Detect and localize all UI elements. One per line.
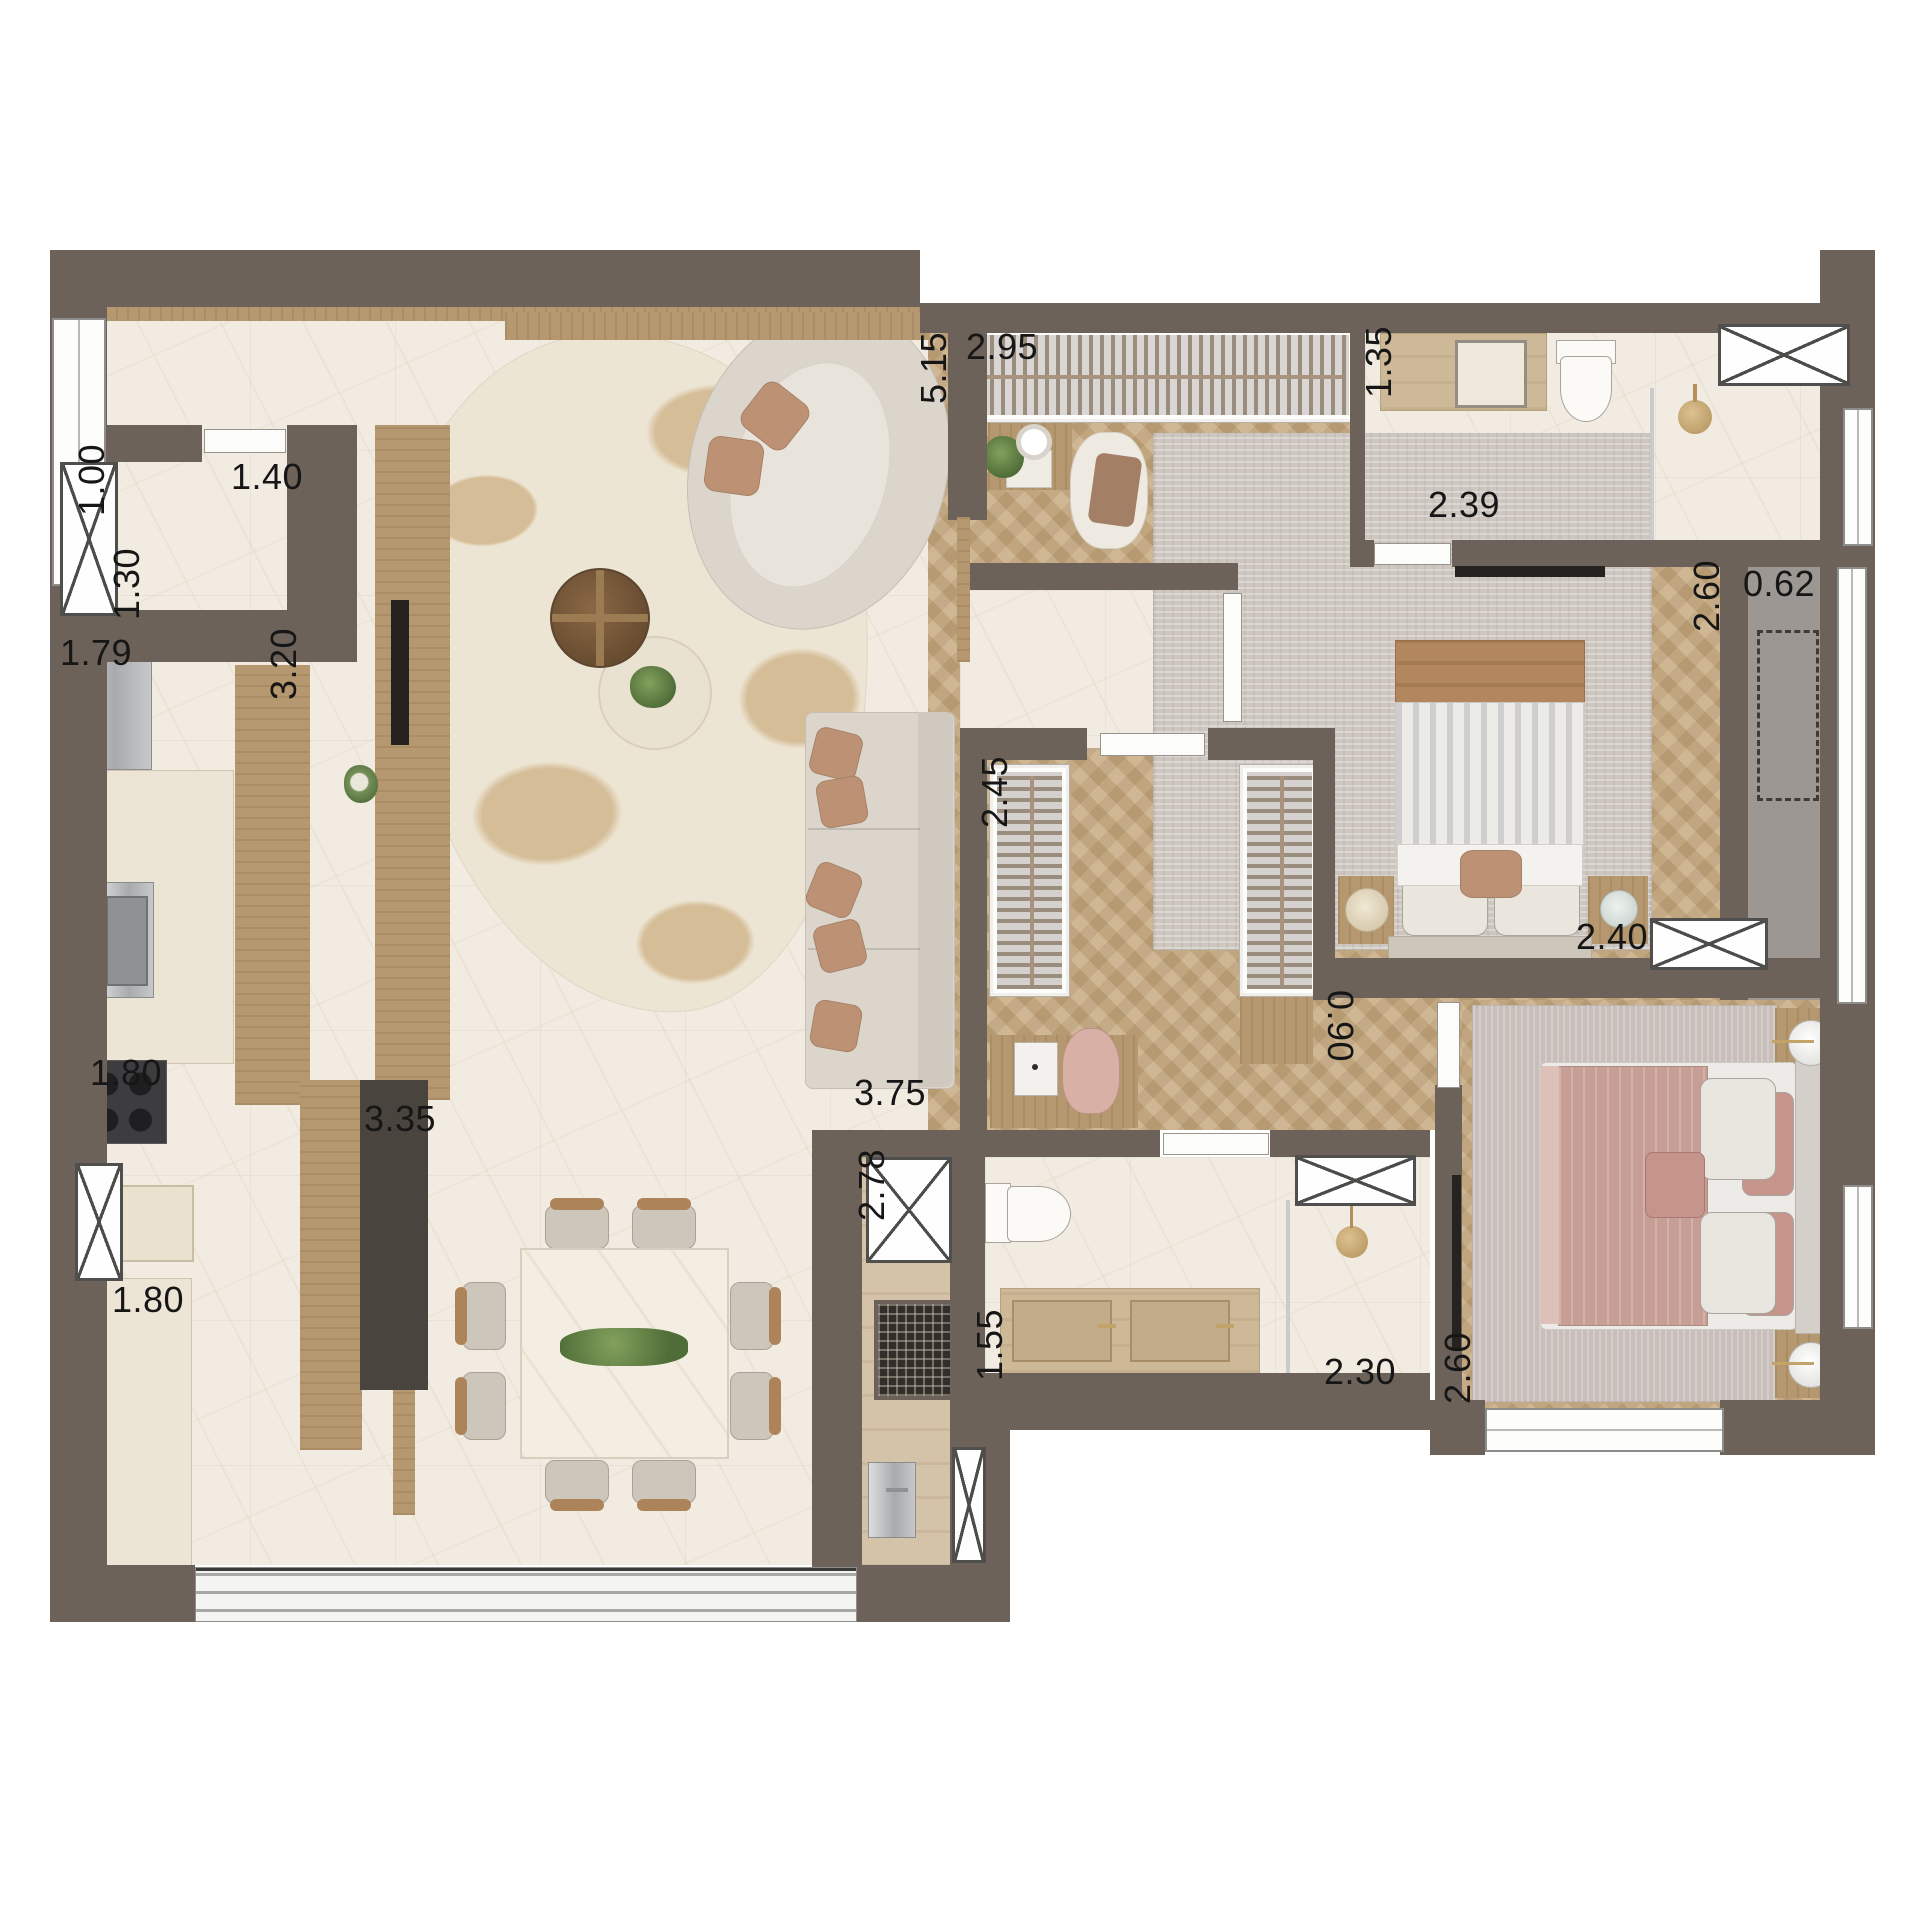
wall [105,425,202,462]
dining-chair [545,1460,609,1504]
balcony-glass [1837,567,1867,1004]
door-entry-bath [204,429,286,453]
shower-head [1678,400,1712,434]
wall [1720,1400,1875,1455]
wall [965,563,1238,590]
faucet [1098,1324,1116,1328]
dimension-label: 3.20 [263,628,305,700]
dimension-label: 1.55 [969,1309,1011,1381]
suite-armchair-cushion [1087,452,1142,528]
laptop-dot [1032,1064,1038,1070]
dimension-label: 2.78 [851,1149,893,1221]
dimension-label: 2.60 [1437,1332,1479,1404]
kitchen-tall-cabinets [235,665,310,1105]
master-bath-window [1843,408,1873,546]
dimension-label: 3.35 [364,1098,436,1140]
dimension-label: 1.30 [106,548,148,620]
shaft-bath2 [1295,1155,1416,1206]
bath2-sink [1012,1300,1112,1362]
dimension-label: 1.80 [90,1052,162,1094]
dining-chair [632,1205,696,1249]
door-closet [1100,733,1205,756]
sofa-pillow [814,774,870,830]
toilet2-bowl [1007,1186,1071,1242]
shaft-kitchen [75,1163,123,1281]
dining-chair [730,1282,774,1350]
bed2-sheet-fold [1541,1066,1559,1324]
bed2-pillow [1700,1212,1776,1314]
tv-sideboard [375,425,450,1100]
shower-arm [1693,384,1697,402]
bed2-cushion [1645,1152,1705,1218]
master-bed-duvet [1395,702,1585,854]
dining-chair [632,1460,696,1504]
door-jamb-wood [957,517,970,662]
coffee-table [550,568,650,668]
wall [50,250,920,307]
dimension-label: 2.45 [974,756,1016,828]
master-bed-blanket [1395,640,1585,706]
dimension-label: 2.60 [1686,560,1728,632]
lamp-arm-gold [1772,1362,1814,1365]
wall [1208,728,1320,760]
bedroom2-window [1485,1408,1724,1452]
wall [1320,958,1875,998]
sliding-glass-door [195,1567,857,1622]
dimension-label: 1.40 [231,456,303,498]
top-sideboard [505,312,930,340]
dimension-label: 1.79 [60,632,132,674]
dimension-label: 2.39 [1428,484,1500,526]
wall [50,1565,195,1622]
shower2-head [1336,1226,1368,1258]
door-corridor [1223,593,1242,722]
balcony-sink [868,1462,916,1538]
bed2-headboard [1795,1058,1823,1334]
kitchen-sink-bowl [106,896,148,986]
nightstand-tray [1345,888,1389,932]
main-sofa-back [918,712,953,1087]
sofa-pillow [702,434,765,497]
dining-centerpiece [560,1328,688,1366]
shaft-master-bedroom [1650,918,1768,970]
kitchen-cabinet-marble [118,1185,194,1262]
desk-tray [1016,424,1052,460]
dining-chair [545,1205,609,1249]
door-bath2 [1163,1133,1269,1155]
dimension-label: 0.90 [1319,990,1361,1062]
lamp-arm-gold [1772,1040,1814,1043]
dimension-label: 1.35 [1358,326,1400,398]
master-cushion [1460,850,1522,898]
sofa-pillow [808,998,864,1054]
balcony-small-window [952,1447,986,1563]
dining-chair [730,1372,774,1440]
bed2-pillow [1700,1078,1776,1180]
toilet-bowl [1560,356,1612,422]
wall [1270,1130,1430,1157]
dimension-label: 2.30 [1324,1351,1396,1393]
tv-master [1455,566,1605,577]
ac-unit-dashed [1757,630,1819,801]
floor-plan: 1.001.401.301.793.201.801.803.355.152.95… [0,0,1920,1920]
master-sink [1455,340,1527,408]
main-sofa-seatline [808,828,920,830]
closet-rack-right [1240,765,1319,996]
balcony-faucet [886,1488,908,1492]
dining-chair [462,1372,506,1440]
dimension-label: 5.15 [913,332,955,404]
dimension-label: 1.00 [71,444,113,516]
dimension-label: 3.75 [854,1072,926,1114]
dimension-label: 1.80 [112,1279,184,1321]
dimension-label: 0.62 [1743,563,1815,605]
door-bedroom2 [1437,1002,1460,1088]
tv-bedroom2 [1452,1175,1461,1350]
bedroom2-east-window [1843,1185,1873,1329]
door-master-bath [1374,543,1451,565]
wall [1365,540,1374,567]
shower2-glass [1286,1200,1290,1373]
tv-living [391,600,409,745]
bbq-grill [874,1300,956,1400]
ottoman-plant [630,666,676,708]
desk-chair [1062,1028,1120,1114]
buffet-cabinet [300,1080,362,1450]
bath2-sink [1130,1300,1230,1362]
flowers-sideboard [344,765,378,803]
faucet [1216,1324,1234,1328]
closet-cabinet [1240,992,1313,1064]
buffet-post [393,1390,415,1515]
shaft-master-bath [1718,324,1850,386]
dimension-label: 2.95 [966,326,1038,368]
dining-chair [462,1282,506,1350]
dimension-label: 2.40 [1576,916,1648,958]
wall [1430,1400,1485,1455]
closet-hangers [1247,772,1312,989]
shower-glass [1650,388,1654,540]
